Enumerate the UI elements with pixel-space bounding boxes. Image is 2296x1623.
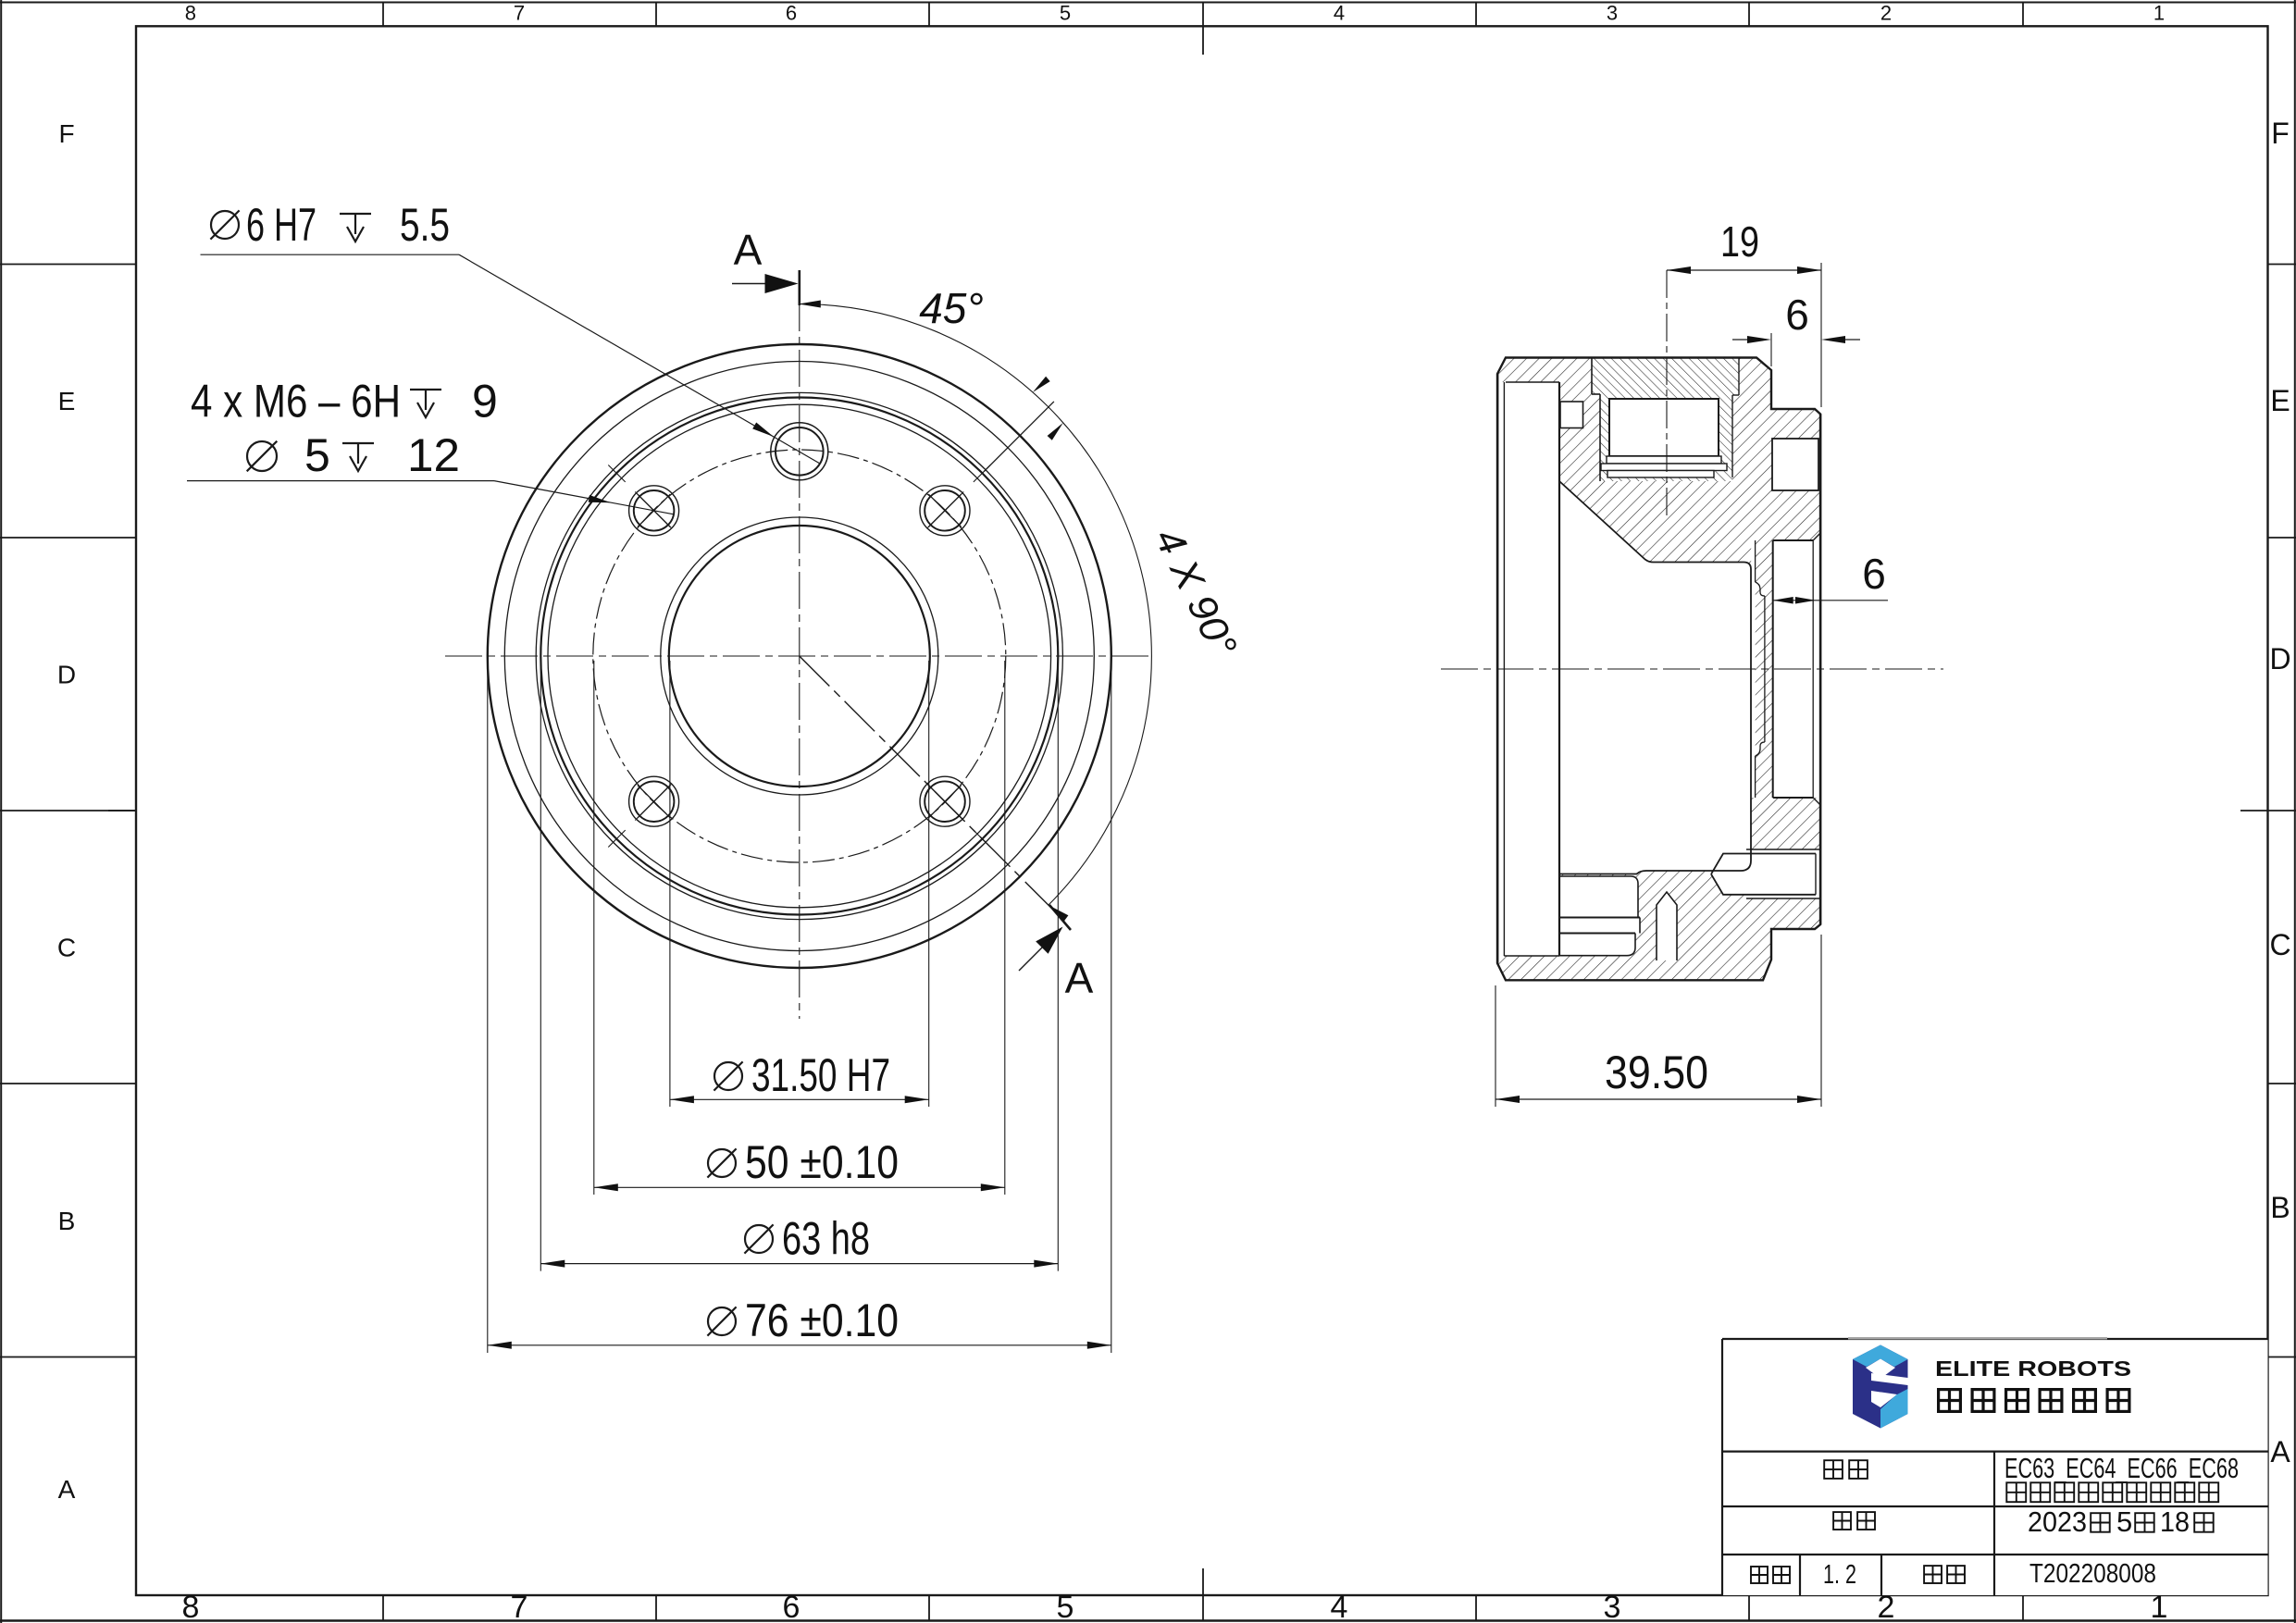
svg-text:2: 2 (1880, 2, 1892, 25)
svg-text:3: 3 (1607, 2, 1618, 25)
svg-text:A: A (734, 226, 763, 274)
svg-text:6: 6 (786, 2, 797, 25)
svg-text:A: A (58, 1475, 76, 1504)
svg-text:B: B (2270, 1191, 2290, 1224)
svg-text:6: 6 (1785, 291, 1809, 339)
svg-text:ELITE ROBOTS: ELITE ROBOTS (1935, 1357, 2131, 1381)
svg-text:B: B (58, 1207, 76, 1235)
svg-text:8: 8 (185, 2, 196, 25)
svg-text:12: 12 (407, 429, 460, 481)
svg-text:39.50: 39.50 (1605, 1047, 1708, 1098)
svg-text:5: 5 (2116, 1505, 2132, 1538)
svg-text:1: 1 (2153, 2, 2165, 25)
svg-text:31.50 H7: 31.50 H7 (751, 1049, 890, 1101)
svg-text:F: F (58, 119, 74, 148)
svg-text:18: 18 (2160, 1505, 2190, 1538)
svg-text:D: D (57, 661, 76, 689)
svg-text:EC63_EC64_EC66_EC68: EC63_EC64_EC66_EC68 (2004, 1452, 2239, 1484)
svg-text:76 ±0.10: 76 ±0.10 (745, 1295, 899, 1346)
svg-text:T202208008: T202208008 (2029, 1559, 2156, 1589)
svg-text:63 h8: 63 h8 (782, 1213, 870, 1265)
svg-text:19: 19 (1720, 217, 1759, 266)
svg-text:F: F (2271, 117, 2290, 150)
svg-text:9: 9 (472, 376, 498, 427)
svg-text:50 ±0.10: 50 ±0.10 (745, 1136, 899, 1188)
svg-text:2023: 2023 (2028, 1505, 2087, 1538)
svg-text:7: 7 (514, 2, 525, 25)
svg-text:A: A (2270, 1435, 2290, 1468)
svg-text:E: E (58, 387, 76, 415)
svg-text:1. 2: 1. 2 (1823, 1560, 1856, 1590)
svg-text:7: 7 (511, 1590, 528, 1623)
svg-text:5: 5 (1060, 2, 1071, 25)
svg-text:D: D (2269, 642, 2290, 675)
svg-text:4: 4 (1334, 2, 1345, 25)
svg-text:5.5: 5.5 (400, 199, 450, 251)
svg-text:4 x M6 – 6H: 4 x M6 – 6H (191, 376, 401, 427)
svg-text:C: C (2269, 928, 2290, 961)
svg-text:C: C (57, 934, 76, 962)
svg-text:45°: 45° (919, 284, 984, 332)
svg-text:E: E (2270, 384, 2290, 417)
svg-text:A: A (1065, 954, 1094, 1002)
svg-text:6: 6 (783, 1590, 800, 1623)
svg-text:6: 6 (1862, 550, 1886, 598)
svg-text:3: 3 (1604, 1590, 1621, 1623)
svg-text:4: 4 (1331, 1590, 1348, 1623)
svg-text:6 H7: 6 H7 (246, 199, 316, 251)
svg-text:8: 8 (181, 1590, 199, 1623)
svg-text:5: 5 (1057, 1590, 1074, 1623)
svg-text:5: 5 (304, 429, 330, 481)
